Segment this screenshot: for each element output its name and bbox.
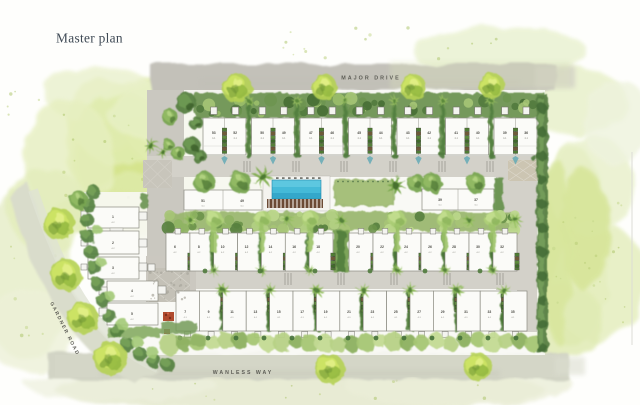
svg-text:6: 6: [174, 245, 176, 249]
svg-text:25: 25: [394, 310, 398, 314]
svg-text:52: 52: [233, 131, 237, 135]
svg-text:37: 37: [474, 198, 478, 202]
svg-text:40: 40: [476, 131, 480, 135]
svg-text:39: 39: [438, 198, 442, 202]
svg-text:17: 17: [300, 310, 304, 314]
svg-text:44: 44: [379, 131, 383, 135]
svg-text:41: 41: [454, 131, 458, 135]
svg-text:49: 49: [240, 199, 244, 203]
svg-text:20: 20: [356, 245, 360, 249]
svg-text:50: 50: [260, 131, 264, 135]
svg-text:Master plan: Master plan: [56, 31, 123, 46]
svg-text:7: 7: [184, 310, 186, 314]
svg-text:13: 13: [254, 310, 258, 314]
svg-text:MAJOR DRIVE: MAJOR DRIVE: [341, 76, 400, 82]
svg-text:2: 2: [112, 241, 114, 245]
svg-text:11: 11: [230, 310, 234, 314]
svg-text:47: 47: [309, 131, 313, 135]
svg-text:15: 15: [277, 310, 281, 314]
svg-text:5: 5: [131, 312, 133, 316]
svg-text:33: 33: [488, 310, 492, 314]
svg-text:9: 9: [208, 310, 210, 314]
svg-text:24: 24: [404, 245, 408, 249]
svg-text:46: 46: [330, 131, 334, 135]
svg-text:32: 32: [500, 245, 504, 249]
svg-text:14: 14: [269, 245, 273, 249]
svg-text:43: 43: [406, 131, 410, 135]
svg-text:36: 36: [524, 131, 528, 135]
svg-text:27: 27: [417, 310, 421, 314]
svg-text:18: 18: [316, 245, 320, 249]
svg-text:53: 53: [212, 131, 216, 135]
svg-text:16: 16: [292, 245, 296, 249]
svg-text:3: 3: [112, 266, 114, 270]
svg-text:42: 42: [427, 131, 431, 135]
svg-text:30: 30: [476, 245, 480, 249]
svg-text:4: 4: [131, 289, 133, 293]
svg-text:21: 21: [347, 310, 351, 314]
svg-text:29: 29: [441, 310, 445, 314]
svg-text:28: 28: [452, 245, 456, 249]
svg-text:31: 31: [464, 310, 468, 314]
svg-text:39: 39: [503, 131, 507, 135]
svg-text:26: 26: [428, 245, 432, 249]
svg-text:1: 1: [112, 215, 114, 219]
svg-text:35: 35: [511, 310, 515, 314]
svg-text:19: 19: [324, 310, 328, 314]
svg-text:49: 49: [282, 131, 286, 135]
svg-text:22: 22: [380, 245, 384, 249]
svg-text:8: 8: [198, 245, 200, 249]
svg-text:WANLESS WAY: WANLESS WAY: [213, 370, 273, 376]
svg-text:10: 10: [221, 245, 225, 249]
svg-text:23: 23: [371, 310, 375, 314]
svg-text:12: 12: [245, 245, 249, 249]
svg-text:45: 45: [357, 131, 361, 135]
svg-text:51: 51: [201, 199, 205, 203]
